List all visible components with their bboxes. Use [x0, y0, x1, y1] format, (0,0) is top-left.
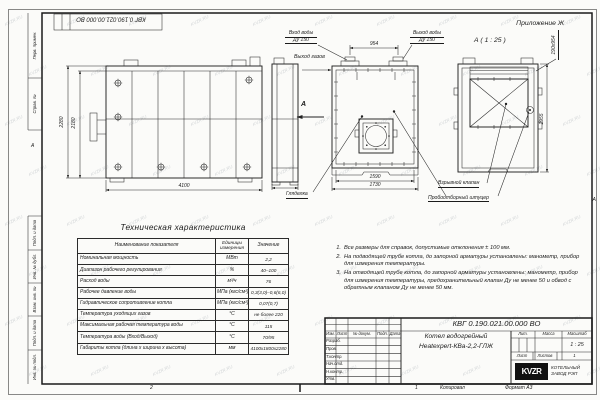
frame-col-vzam-inv: Взам. инв. № [29, 283, 42, 316]
row-value: 2,2 [249, 254, 289, 265]
row-value: 115 [249, 321, 289, 332]
row-unit: °С [216, 321, 249, 332]
row-unit: °С [216, 332, 249, 343]
row-name: Рабочее давление воды [78, 287, 216, 298]
water-outlet-line2: Ду 150 [410, 38, 444, 45]
table-row: Номинальная мощностьМВт2,2 [78, 254, 289, 265]
water-inlet-callout: Вход воды Ду 150 [285, 31, 317, 44]
view-arrow-letter: А [301, 101, 306, 109]
row-razrab: Разраб. [326, 339, 341, 344]
row-value: не более 220 [249, 309, 289, 320]
row-name: Диапазон рабочего регулирования [78, 265, 216, 276]
note-number: 3. [331, 270, 344, 292]
row-value: 0,07(0,7) [249, 298, 289, 309]
dim-1590: 1590 [363, 175, 387, 181]
note-number: 2. [331, 254, 344, 269]
row-tkontr: Т.контр. [326, 355, 343, 360]
doc-number-flipped: КВГ 0.190.021.00.000 ВО [62, 15, 160, 22]
dim-954: 954 [364, 42, 384, 48]
col-data: Дата [389, 332, 401, 337]
row-name: Температура уходящих газов [78, 309, 216, 320]
note-text: На подводящей трубе котла, до запорной а… [344, 254, 585, 269]
row-unit: МПа (кгс/см²) [216, 287, 249, 298]
title-block-doc-number: КВГ 0.190.021.00.000 ВО [401, 320, 592, 329]
row-name: Максимальная рабочая температура воды [78, 321, 216, 332]
dim-4100: 4100 [172, 184, 196, 190]
row-unit: м³/ч [216, 276, 249, 287]
row-name: Габариты котла (длина х ширина х высота) [78, 343, 216, 354]
gas-outlet-label: Выход газов [294, 55, 325, 61]
frame-col-podp-data-1: Подп. и дата [29, 216, 42, 250]
edge-view [272, 58, 331, 190]
table-row: Температура уходящих газов°Сне более 220 [78, 309, 289, 320]
row-unit: МВт [216, 254, 249, 265]
product-name-line1: Котел водогрейный [401, 333, 511, 340]
explosion-valve-label: Взрывной клапан [438, 181, 479, 188]
frame-col-inv-dubl: Инв. № дубл. [29, 250, 42, 283]
spec-col-name: Наименование показателя [78, 239, 216, 254]
sheets-value: 1 [557, 354, 592, 359]
note-number: 1. [331, 245, 344, 252]
zone-number-2: 2 [150, 386, 153, 392]
zone-letter-left: А [31, 144, 34, 150]
note-2: 2.На подводящей трубе котла, до запорной… [331, 254, 585, 269]
spec-table: Наименование показателя Единицы измерени… [77, 238, 289, 355]
row-unit: °С [216, 309, 249, 320]
table-row: Расход водым³/ч76 [78, 276, 289, 287]
sampling-fitting-label: Пробоотборный штуцер [428, 196, 489, 203]
row-value: 40–100 [249, 265, 289, 276]
logo-caption-line1: КОТЕЛЬНЫЙ [551, 365, 580, 371]
spec-col-value: Значение [249, 239, 289, 254]
col-podp: Подп. [376, 332, 389, 337]
table-row: Габариты котла (длина х ширина х высота)… [78, 343, 289, 354]
logo-caption-line2: ЗАВОД РЭП [551, 371, 580, 377]
spec-col-unit: Единицы измерения [216, 239, 249, 254]
col-izm: Изм. [325, 332, 336, 337]
zone-number-1: 1 [415, 386, 418, 392]
row-unit: мм [216, 343, 249, 354]
row-name: Расход воды [78, 276, 216, 287]
col-doc: № докум. [348, 332, 376, 337]
water-outlet-callout: Выход воды Ду 150 [410, 31, 444, 44]
note-text: На отводящей трубе котла, до запорной ар… [344, 270, 585, 292]
table-row: Диапазон рабочего регулирования%40–100 [78, 265, 289, 276]
dim-190x954: 190х954 [552, 30, 559, 60]
table-row: Рабочее давление водыМПа (кгс/см²)0,3(3,… [78, 287, 289, 298]
row-value: 0,3(3,0)–0,6(6,0) [249, 287, 289, 298]
col-list: Лист [336, 332, 348, 337]
view-a-scale-label: А ( 1 : 25 ) [474, 37, 506, 45]
table-row: Гидравлическое сопротивление котлаМПа (к… [78, 298, 289, 309]
dim-2180: 2180 [72, 105, 78, 141]
frame-col-perv-primen: Перв. примен. [29, 13, 42, 78]
row-unit: МПа (кгс/см²) [216, 298, 249, 309]
row-nachotd: Нач.отд. [326, 362, 343, 367]
kvzr-logo: KVZR [515, 363, 548, 380]
format-label: Формат А3 [505, 386, 532, 392]
row-unit: % [216, 265, 249, 276]
row-value: 4100х1800х2280 [249, 343, 289, 354]
dim-1730: 1730 [363, 183, 387, 189]
dim-2280: 2280 [60, 104, 66, 140]
row-utv: Утв. [326, 377, 335, 382]
table-row: Максимальная рабочая температура воды°С1… [78, 321, 289, 332]
row-nkontr: Н.контр. [326, 370, 343, 375]
zone-letter-right: А [593, 198, 596, 204]
scale-value: 1 : 25 [562, 342, 592, 348]
note-text: Все размеры для справок, допустимые откл… [344, 245, 585, 252]
frame-col-sprav: Справ. № [29, 78, 42, 130]
product-name-line2: Heatexpert-КВа-2,2-ГЛЖ [401, 343, 511, 350]
spec-header-row: Наименование показателя Единицы измерени… [78, 239, 289, 254]
peephole-label: Гляделка [286, 192, 308, 199]
side-view [66, 57, 262, 192]
appendix-label: Приложение Ж [490, 20, 564, 28]
row-name: Гидравлическое сопротивление котла [78, 298, 216, 309]
row-name: Номинальная мощность [78, 254, 216, 265]
sheet-label: Лист [511, 354, 533, 359]
drawing-sheet: KVZR.RUKVZR.RUKVZR.RUKVZR.RUKVZR.RUKVZR.… [0, 0, 600, 400]
sheets-label: Листов [533, 354, 557, 359]
notes-list: 1.Все размеры для справок, допустимые от… [331, 245, 585, 294]
copy-label: Копировал [440, 386, 465, 392]
row-value: 70/95 [249, 332, 289, 343]
note-1: 1.Все размеры для справок, допустимые от… [331, 245, 585, 252]
note-3: 3.На отводящей трубе котла, до запорной … [331, 270, 585, 292]
table-row: Температура воды (Вход/Выход)°С70/95 [78, 332, 289, 343]
lit-label: Лит. [511, 332, 535, 337]
row-prov: Пров. [326, 347, 337, 352]
frame-col-inv-podl: Инв. № подл. [29, 350, 42, 384]
row-value: 76 [249, 276, 289, 287]
dim-1955: 1955 [540, 101, 546, 137]
mass-label: Масса [535, 332, 562, 337]
logo-caption: КОТЕЛЬНЫЙ ЗАВОД РЭП [551, 365, 580, 378]
spec-table-title: Техническая характеристика [88, 223, 278, 232]
row-name: Температура воды (Вход/Выход) [78, 332, 216, 343]
water-inlet-line2: Ду 150 [285, 38, 317, 45]
frame-col-podp-data-2: Подп. и дата [29, 316, 42, 350]
scale-label: Масштаб [562, 332, 592, 337]
